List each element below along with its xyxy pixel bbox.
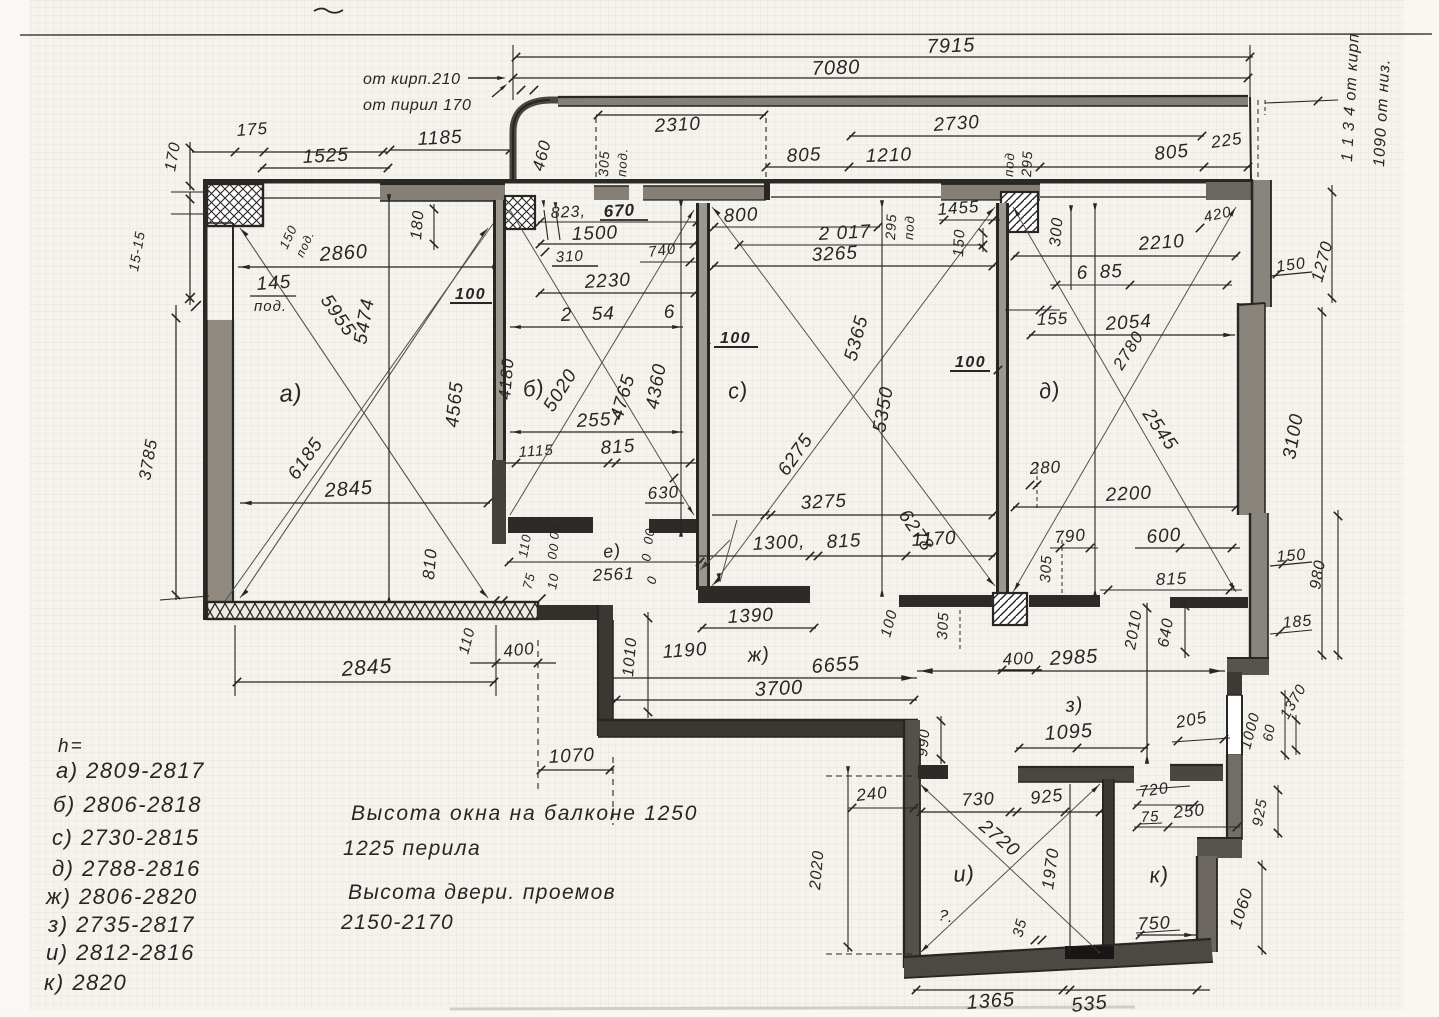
svg-text:1095: 1095 — [1044, 720, 1094, 745]
svg-text:100: 100 — [455, 286, 486, 303]
svg-text:Высота двери. проемов: Высота двери. проемов — [348, 881, 616, 904]
svg-text:100: 100 — [955, 354, 986, 371]
svg-text:400: 400 — [502, 639, 535, 661]
svg-text:з) 2735-2817: з) 2735-2817 — [47, 912, 195, 937]
svg-text:54: 54 — [591, 303, 615, 325]
svg-text:6655: 6655 — [811, 653, 861, 678]
svg-text:2150-2170: 2150-2170 — [340, 911, 454, 934]
svg-text:2 017: 2 017 — [817, 221, 872, 245]
svg-text:790: 790 — [1054, 525, 1087, 547]
svg-text:к) 2820: к) 2820 — [44, 970, 127, 995]
svg-text:805: 805 — [1153, 140, 1190, 165]
svg-text:815: 815 — [600, 436, 636, 459]
svg-text:с): с) — [726, 376, 750, 404]
svg-text:Высота окна на балконе 1250: Высота окна на балконе 1250 — [351, 802, 698, 825]
svg-text:з): з) — [1064, 693, 1085, 717]
svg-text:1225 перила: 1225 перила — [343, 837, 481, 860]
svg-text:а): а) — [278, 379, 304, 408]
svg-text:2860: 2860 — [318, 241, 369, 266]
svg-text:175: 175 — [236, 119, 269, 140]
svg-text:800: 800 — [723, 204, 759, 227]
svg-text:925: 925 — [1029, 785, 1064, 808]
svg-text:под: под — [901, 215, 917, 240]
svg-text:3275: 3275 — [800, 491, 847, 514]
svg-text:185: 185 — [1282, 612, 1313, 632]
svg-text:305: 305 — [934, 611, 952, 640]
svg-text:1010: 1010 — [620, 636, 640, 677]
svg-text:150: 150 — [950, 228, 968, 257]
svg-text:295: 295 — [882, 213, 899, 241]
svg-text:670: 670 — [603, 200, 635, 221]
svg-text:2230: 2230 — [583, 270, 631, 293]
svg-text:810: 810 — [419, 547, 441, 580]
svg-text:600: 600 — [1146, 525, 1182, 548]
svg-text:00: 00 — [546, 522, 564, 541]
svg-text:100: 100 — [720, 330, 751, 347]
svg-text:1455: 1455 — [937, 197, 980, 219]
svg-text:1390: 1390 — [727, 605, 774, 628]
svg-text:?.: ?. — [937, 907, 955, 926]
svg-text:1185: 1185 — [417, 127, 463, 150]
svg-text:00: 00 — [640, 527, 658, 546]
svg-text:под.: под. — [614, 147, 631, 177]
svg-text:2845: 2845 — [323, 477, 374, 502]
svg-text:h=: h= — [58, 736, 84, 757]
svg-text:00: 00 — [544, 542, 562, 561]
svg-text:280: 280 — [1028, 457, 1061, 478]
svg-text:а) 2809-2817: а) 2809-2817 — [56, 758, 205, 783]
svg-text:535: 535 — [1070, 991, 1108, 1017]
svg-text:под.: под. — [254, 298, 287, 315]
svg-text:3265: 3265 — [811, 243, 858, 266]
svg-text:2845: 2845 — [340, 655, 393, 682]
svg-text:ж) 2806-2820: ж) 2806-2820 — [45, 884, 198, 909]
svg-text:85: 85 — [1099, 261, 1123, 283]
svg-text:2: 2 — [559, 305, 572, 326]
svg-text:к): к) — [1148, 861, 1170, 888]
svg-text:6: 6 — [1076, 262, 1089, 284]
svg-text:от пирил 170: от пирил 170 — [363, 97, 471, 114]
svg-text:815: 815 — [826, 530, 862, 553]
svg-text:1210: 1210 — [865, 144, 912, 167]
svg-text:305: 305 — [1037, 554, 1055, 583]
svg-text:1070: 1070 — [548, 745, 595, 768]
svg-text:и): и) — [952, 860, 976, 887]
svg-text:240: 240 — [854, 783, 888, 805]
svg-text:10: 10 — [544, 572, 562, 591]
svg-text:ж): ж) — [746, 643, 771, 667]
svg-text:7080: 7080 — [811, 56, 860, 80]
svg-text:1365: 1365 — [966, 989, 1016, 1014]
svg-text:7915: 7915 — [926, 34, 975, 58]
svg-text:1115: 1115 — [518, 442, 554, 461]
svg-text:2561: 2561 — [591, 564, 635, 585]
svg-text:815: 815 — [1155, 569, 1187, 589]
svg-text:2730: 2730 — [932, 112, 981, 136]
svg-text:250: 250 — [1172, 800, 1206, 822]
svg-text:60: 60 — [1259, 722, 1278, 742]
svg-text:2020: 2020 — [807, 849, 827, 891]
svg-text:под: под — [1001, 152, 1017, 177]
svg-text:1500: 1500 — [571, 222, 618, 245]
svg-text:2310: 2310 — [653, 114, 701, 137]
svg-text:д): д) — [1037, 376, 1062, 404]
svg-text:1300,: 1300, — [752, 531, 806, 555]
svg-text:1170: 1170 — [911, 528, 957, 551]
svg-text:2210: 2210 — [1137, 231, 1186, 255]
svg-text:300: 300 — [1047, 216, 1067, 247]
svg-text:б) 2806-2818: б) 2806-2818 — [53, 792, 202, 817]
svg-text:от кирп.210: от кирп.210 — [363, 71, 460, 88]
svg-text:3700: 3700 — [754, 676, 804, 701]
svg-text:4180: 4180 — [495, 357, 518, 400]
svg-text:2557: 2557 — [575, 409, 624, 432]
svg-text:730: 730 — [961, 788, 995, 810]
svg-text:180: 180 — [408, 209, 428, 240]
svg-text:2985: 2985 — [1048, 645, 1099, 670]
svg-text:е): е) — [602, 540, 623, 562]
svg-text:6: 6 — [663, 302, 675, 323]
svg-text:400: 400 — [1002, 648, 1034, 669]
svg-text:с) 2730-2815: с) 2730-2815 — [52, 825, 200, 850]
svg-text:д) 2788-2816: д) 2788-2816 — [52, 856, 201, 881]
svg-text:305: 305 — [595, 150, 612, 177]
svg-text:145: 145 — [256, 272, 292, 295]
svg-text:805: 805 — [786, 144, 822, 167]
svg-text:2200: 2200 — [1104, 483, 1152, 506]
svg-text:155: 155 — [1036, 309, 1068, 329]
svg-text:1190: 1190 — [662, 639, 708, 663]
svg-text:310: 310 — [555, 248, 584, 266]
svg-text:и) 2812-2816: и) 2812-2816 — [46, 940, 195, 965]
svg-text:295: 295 — [1018, 150, 1035, 178]
svg-text:630: 630 — [647, 482, 679, 503]
svg-text:б): б) — [521, 374, 546, 402]
svg-text:1525: 1525 — [302, 145, 349, 168]
